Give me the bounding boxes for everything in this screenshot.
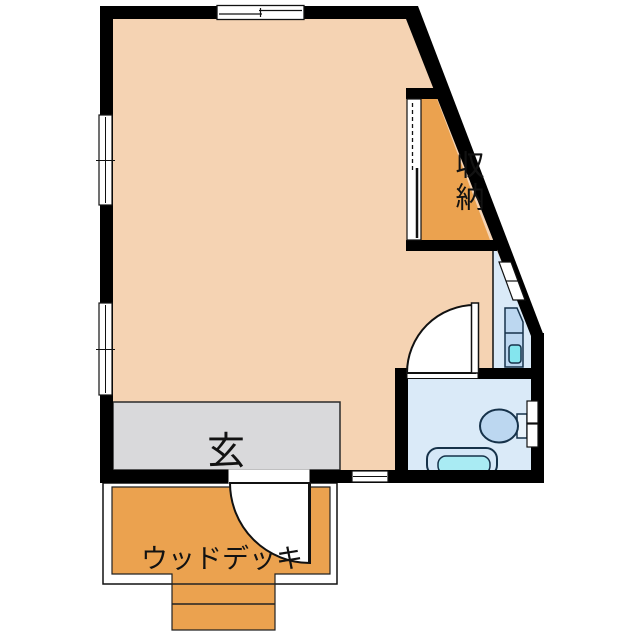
wall-left (100, 6, 113, 483)
wall-storage-bottom (406, 240, 497, 251)
window-top (217, 6, 304, 20)
floor-plan-canvas: 玄 収納 ウッドデッキ (0, 0, 640, 640)
wall-storage-top (406, 88, 440, 99)
door-interior-leaf (472, 303, 479, 373)
toilet-fixture (480, 410, 518, 443)
wall-bottom (100, 470, 543, 483)
window-toilet-lower (527, 424, 538, 447)
storage-sliding-door (407, 99, 421, 240)
window-left-upper (96, 115, 115, 205)
sink-faucet (509, 345, 521, 363)
window-bottom (352, 471, 388, 482)
window-toilet-upper (527, 401, 538, 423)
window-left-lower (96, 303, 115, 395)
wood-deck-label: ウッドデッキ (90, 537, 354, 576)
entrance-label: 玄 (198, 420, 254, 475)
storage-label: 収納 (447, 150, 489, 214)
wall-toilet-left (395, 368, 408, 483)
